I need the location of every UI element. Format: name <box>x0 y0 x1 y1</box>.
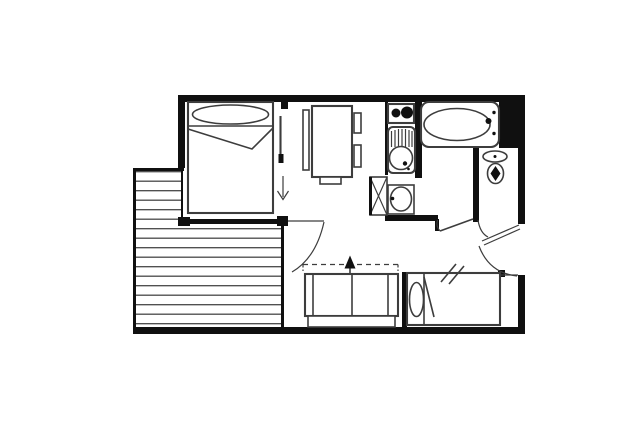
balcony-decking-strip <box>136 171 181 327</box>
bedroom-bottom-wall <box>180 219 277 224</box>
wall-mass-right-of-tub <box>499 95 525 148</box>
entry-door-leaf-inner <box>484 229 520 245</box>
chair-right-2 <box>354 145 361 167</box>
toilet-cistern-dot <box>494 155 497 158</box>
bedroom-partition-stub <box>281 95 288 109</box>
chair-right-1 <box>354 113 361 133</box>
bedroom-corner-right <box>277 216 288 226</box>
balcony-decking-main <box>181 225 281 327</box>
kitchen-sink-unit <box>388 127 415 173</box>
entry-door <box>479 225 520 276</box>
toilet-room <box>483 151 507 184</box>
dining-area <box>303 106 361 184</box>
sink-drain-dot <box>407 168 410 171</box>
double-bed <box>188 102 273 213</box>
balcony-rail-top <box>133 168 184 171</box>
floor-plan-canvas <box>0 0 640 427</box>
dining-table <box>312 106 352 177</box>
bedroom-door-cap <box>279 154 284 163</box>
bathtub <box>421 102 499 147</box>
stool-bottom <box>320 177 341 184</box>
sink-faucet-dot <box>403 161 407 165</box>
sink-drainer-lines <box>392 129 413 147</box>
bedroom-corner-left <box>178 217 190 226</box>
bathtub-tap-dot-2 <box>492 132 495 135</box>
entry-door-leaf-outer <box>482 225 519 241</box>
toilet-room-left-wall <box>473 148 479 222</box>
shower-room-bottom-wall <box>385 215 438 221</box>
bedroom-balcony-edge <box>181 171 183 218</box>
hob-burner-right <box>401 107 413 119</box>
wall-left-upper <box>178 95 185 168</box>
washbasin <box>388 185 414 214</box>
shower-room-door <box>437 219 488 237</box>
sofa-front-band <box>308 316 395 327</box>
utility-cabinet <box>369 177 387 215</box>
washbasin-tap-dot <box>391 197 395 201</box>
sofa-bed <box>303 256 398 328</box>
hob-burner-left <box>392 109 401 118</box>
chair-left <box>303 110 309 170</box>
wall-right-lower <box>518 275 525 334</box>
floor-plan <box>0 0 640 427</box>
cabinet-back-edge <box>369 177 372 215</box>
single-bed <box>407 273 500 325</box>
toilet-door-swing <box>478 220 488 237</box>
fold-out-arrow-head <box>345 256 356 269</box>
wall-bottom <box>133 327 525 334</box>
bathtub-tap-dot-1 <box>492 111 495 114</box>
living-balcony-window-wall <box>281 225 284 327</box>
shower-door-leaf <box>440 219 473 231</box>
bedroom <box>188 102 289 213</box>
balcony-rail-left <box>133 168 136 327</box>
bathtub-drain-dot <box>486 118 492 124</box>
